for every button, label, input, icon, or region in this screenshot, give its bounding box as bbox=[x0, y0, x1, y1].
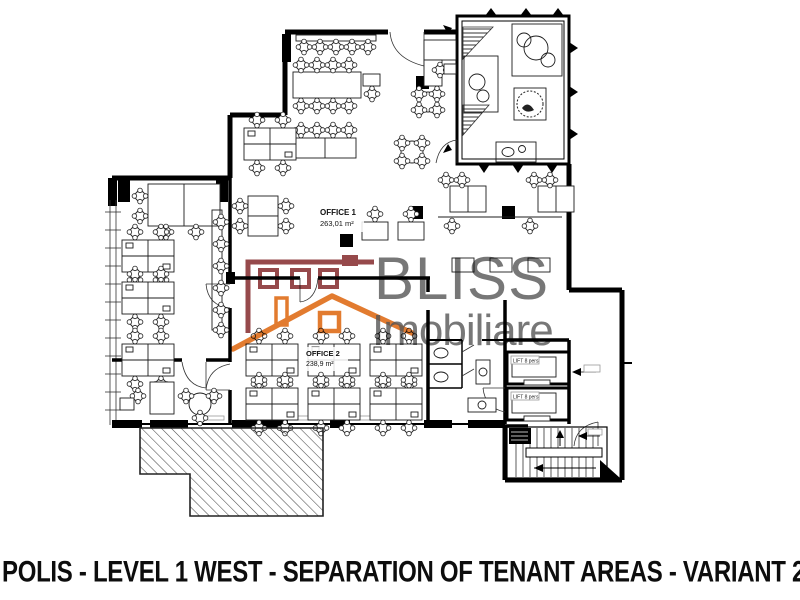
level-marker bbox=[572, 365, 600, 376]
brand-name: BLISS bbox=[374, 245, 549, 312]
wc-fixtures bbox=[434, 348, 496, 412]
office1-name: OFFICE 1 bbox=[320, 208, 357, 217]
caption-bar: POLIS - LEVEL 1 WEST - SEPARATION OF TEN… bbox=[0, 554, 800, 596]
office2-name: OFFICE 2 bbox=[306, 349, 340, 358]
elevator-2: LIFT 8 pers bbox=[507, 388, 569, 421]
terrace-ramp-hatch bbox=[463, 27, 493, 59]
plan-title: POLIS - LEVEL 1 WEST - SEPARATION OF TEN… bbox=[2, 556, 800, 590]
office2-area: 238,9 m² bbox=[306, 361, 334, 368]
elevator-1: LIFT 8 pers bbox=[507, 352, 569, 385]
toilet-icon bbox=[434, 372, 448, 382]
tree-icon bbox=[517, 91, 543, 117]
flat-house-icon bbox=[248, 255, 374, 333]
terrace bbox=[436, 8, 578, 173]
left-wing-furniture bbox=[120, 184, 229, 426]
hatched-terrace bbox=[140, 428, 323, 516]
corner-fill bbox=[600, 460, 620, 478]
level-marker bbox=[578, 429, 602, 440]
lift2-label: LIFT 8 pers bbox=[513, 395, 539, 401]
brand-subname: Imobiliare bbox=[372, 306, 553, 355]
floor-plan-image: LIFT 8 pers LIFT 8 pers bbox=[0, 0, 800, 600]
lift1-label: LIFT 8 pers bbox=[513, 359, 539, 365]
annex: LIFT 8 pers LIFT 8 pers bbox=[505, 340, 632, 478]
plant-icon bbox=[524, 36, 548, 60]
office1-area: 263,01 m² bbox=[320, 219, 354, 228]
sink-counter bbox=[468, 398, 496, 412]
watermark-text: BLISS Imobiliare bbox=[372, 245, 553, 355]
conference-table bbox=[293, 72, 361, 98]
